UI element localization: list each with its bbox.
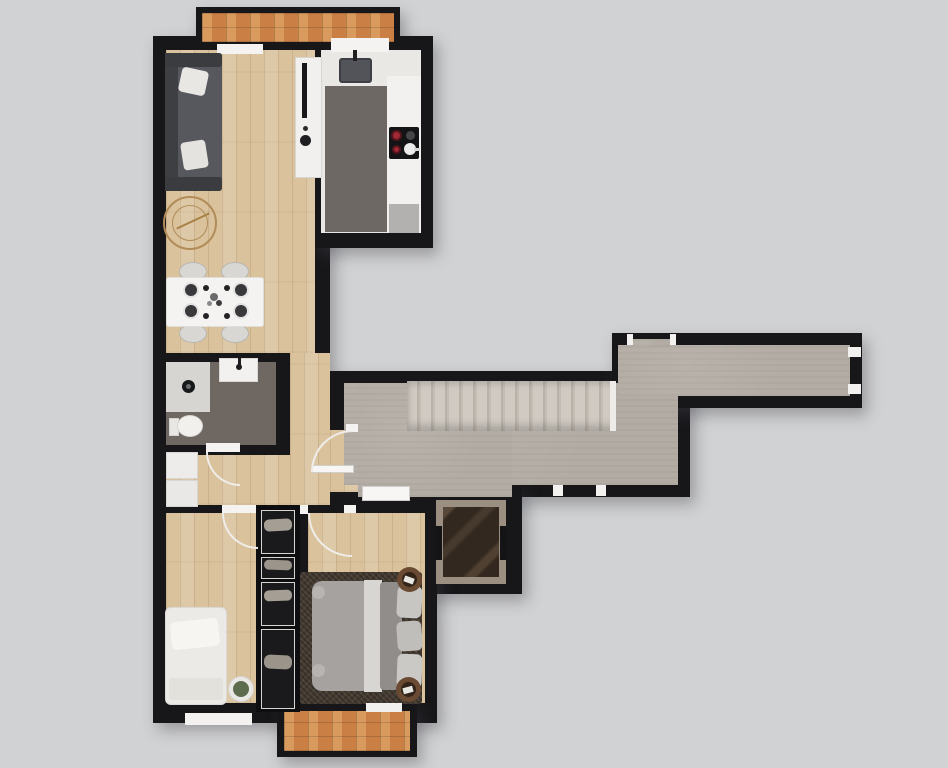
bedroom-right-door-jamb [300,505,308,514]
sofa-pillow-1 [178,66,210,96]
staircase [407,381,616,431]
wardrobe-section-1 [261,510,295,554]
corridor-floor-east [618,345,850,396]
plant [233,681,249,697]
bed-cushion-1 [312,586,325,599]
burner-large [391,130,402,141]
bedroom-left-door-threshold [222,505,256,513]
east-door-jamb-b [848,384,861,394]
kitchen-end-unit [389,204,419,233]
bedroom-right-door-jamb-b [344,505,356,513]
single-bed-pillow [170,618,221,651]
cup-4 [224,313,230,319]
sofa-back [165,53,178,191]
bed-cushion-2 [312,664,325,677]
bathroom-door-threshold [206,443,240,452]
sofa-armrest-top [165,53,222,67]
laundry-cabinet-2 [166,480,198,507]
elevator-cab [443,507,499,577]
kitchen-rug [325,86,387,232]
single-bed-blanket [169,678,223,700]
wardrobe-clothes-2 [264,560,292,571]
burner-small [392,145,401,154]
tv-unit [302,63,307,118]
island-decor-bowl [300,135,311,146]
plate-4 [233,303,249,319]
toilet-bowl [177,415,203,437]
dining-table [166,277,264,327]
hall-floor-right [290,353,330,505]
east-door-jamb-a [848,347,861,357]
bed-pillow-2 [396,620,423,652]
south-door-jamb-a [553,485,563,496]
island-decor-small [303,126,308,131]
unit-door-jamb-a [627,334,633,345]
plate-2 [183,303,199,319]
wardrobe-clothes-3 [264,590,292,602]
south-door-jamb-b [596,485,606,496]
cup-2 [203,313,209,319]
floor-plan [0,0,948,768]
centerpiece-2 [216,300,222,306]
wardrobe-clothes-4 [264,654,293,669]
kitchen-island [295,57,322,178]
shower-drain-cap [186,384,191,389]
burner-gray [406,131,415,140]
staircase-top-tread [610,381,616,431]
kitchen-faucet [353,50,357,61]
balcony-door-threshold [366,703,402,712]
vanity-faucet-stem [238,358,241,365]
elevator-door-left [436,526,442,560]
kitchen-window-sill [331,38,389,52]
kitchen-sink [339,58,372,83]
wardrobe-clothes-1 [264,518,293,531]
laundry-cabinet-1 [166,452,198,479]
wardrobe-section-3 [261,582,295,626]
lobby-door [362,486,410,501]
elevator-door-right [500,526,506,560]
living-window-sill [217,44,263,54]
cup-3 [224,285,230,291]
pan-handle [414,148,420,151]
corridor-door-recess-floor [632,339,670,347]
balcony-bottom-floor [284,711,410,751]
centerpiece-3 [207,301,212,306]
plate-1 [183,282,199,298]
cup-1 [203,285,209,291]
unit-door-jamb-b [670,334,676,345]
plate-3 [233,282,249,298]
sofa-pillow-2 [180,139,209,171]
sofa-armrest-bottom [165,177,222,191]
bedroom-left-window-sill [185,713,252,725]
